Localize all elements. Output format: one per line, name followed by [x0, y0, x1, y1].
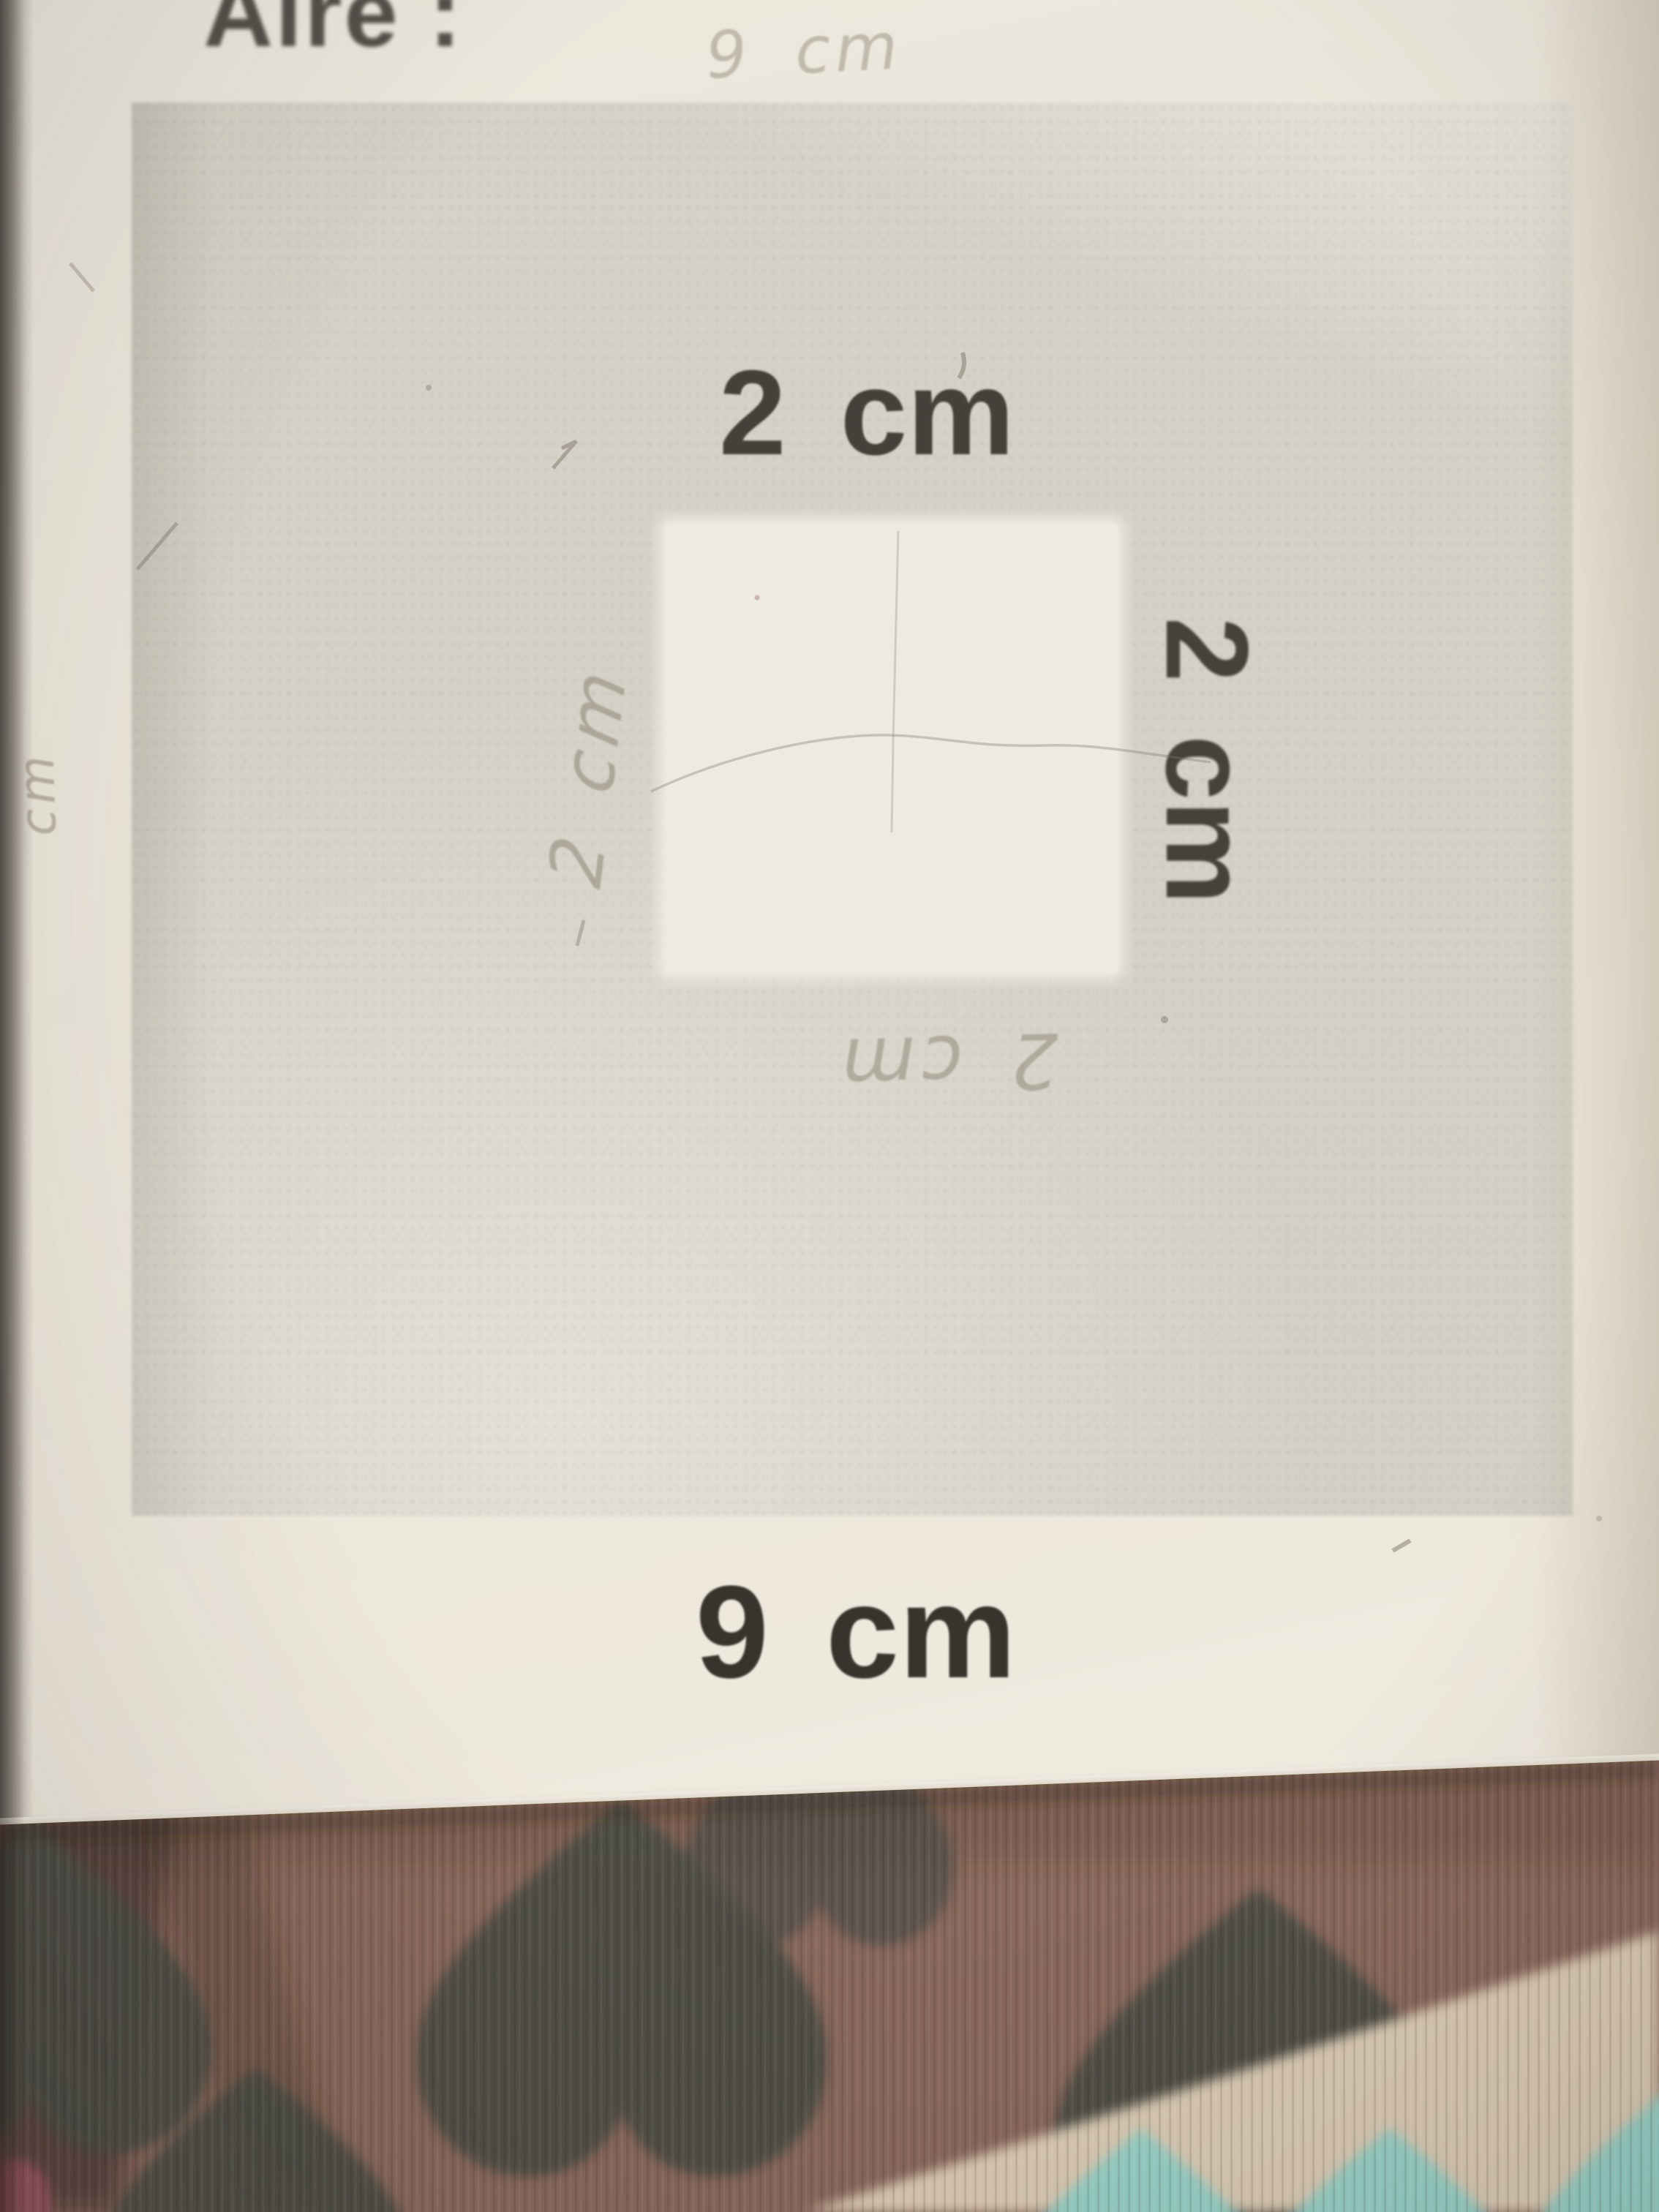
pencil-annotation-cm-margin: cm — [0, 704, 81, 883]
dimension-label-right: 2 cm — [1137, 607, 1276, 914]
dimension-label-top: 2 cm — [713, 344, 1020, 482]
fabric-blanket — [0, 1751, 1659, 2212]
pencil-stroke-b — [70, 263, 94, 291]
pencil-annotation-9cm-top: 9 cm — [704, 8, 903, 94]
worksheet-heading: Aire : — [203, 0, 463, 68]
photo-right-shadow — [1535, 0, 1659, 1785]
dimension-label-bottom: 9 cm — [691, 1557, 1020, 1708]
printed-figure-square — [132, 102, 1573, 1516]
pencil-speck-2 — [1393, 1540, 1410, 1551]
figure-hole-square — [664, 523, 1118, 974]
pencil-annotation-2cm-bottom: 2 cm — [792, 1015, 1102, 1112]
worksheet-photo: Aire : 9 cm 2 cm 2 cm 9 cm 2 cm 2 cm cm — [0, 0, 1659, 2212]
photo-left-shadow — [0, 0, 34, 1829]
